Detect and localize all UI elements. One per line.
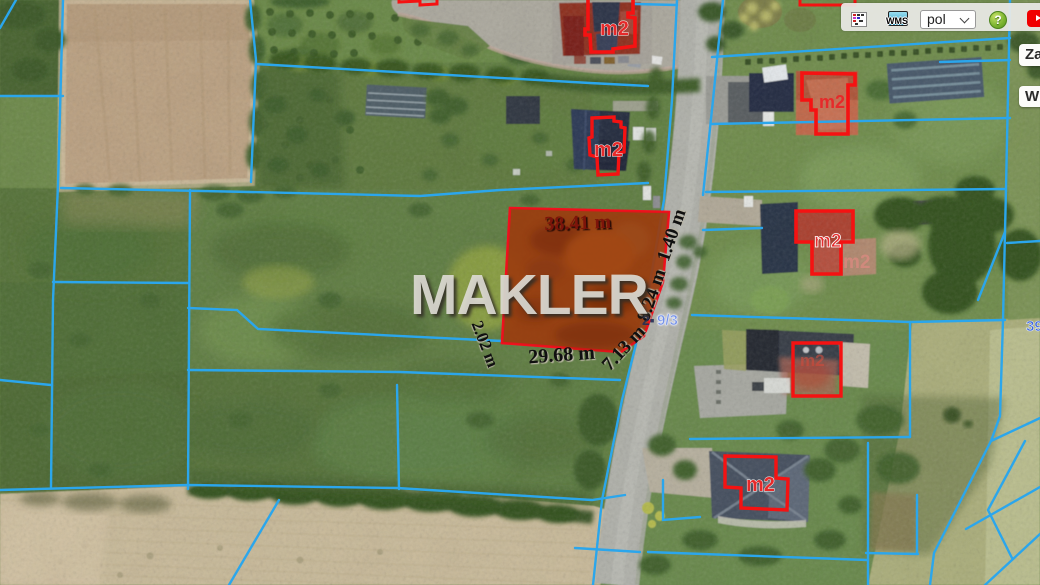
svg-text:39: 39 — [1026, 318, 1040, 335]
svg-text:m2: m2 — [814, 231, 841, 252]
svg-text:9/3: 9/3 — [657, 312, 678, 329]
svg-text:m2: m2 — [594, 139, 623, 161]
svg-text:38.41 m: 38.41 m — [544, 211, 612, 235]
svg-text:m2: m2 — [843, 252, 870, 273]
svg-text:m2: m2 — [746, 474, 775, 496]
svg-text:29.68 m: 29.68 m — [528, 342, 596, 369]
svg-text:m2: m2 — [600, 18, 629, 40]
svg-text:m2: m2 — [819, 92, 845, 112]
